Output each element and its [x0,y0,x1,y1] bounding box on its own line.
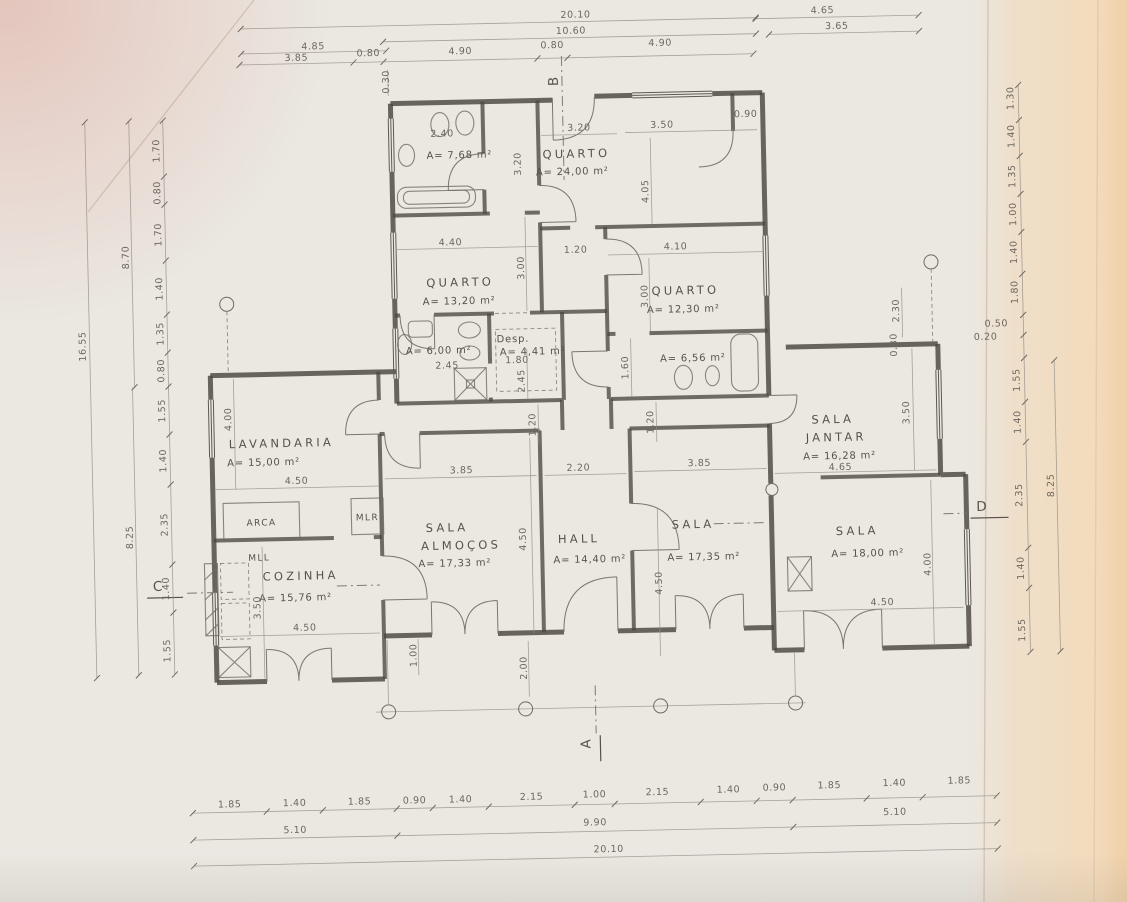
dim-label: 3.00 [516,256,528,280]
marker-letter: B [546,77,562,87]
dim-label: 1.40 [158,449,170,473]
dim-label: 2.20 [567,462,591,474]
fixture-label: MLR [356,513,379,524]
dim-label: 20.10 [560,9,590,21]
room-area: A= 18,00 m² [831,548,904,561]
dim-label: 1.00 [408,643,420,667]
dim-label: 3.50 [901,401,913,425]
left-dim-chain: 1.70 0.80 1.70 1.40 1.35 0.80 1.55 1.40 … [73,118,178,682]
bathtub-inner [403,190,469,204]
dim-label: 1.40 [161,577,173,601]
room-area: A= 7,68 m² [426,149,492,161]
toilet-icon [398,144,414,166]
room-name: ALMOÇOS [421,537,501,553]
dim-label: 2.40 [430,128,454,140]
sink-icon [408,321,432,338]
room-area: A= 12,30 m² [647,304,720,317]
room-name: SALA [672,517,715,532]
dim-label: 0.80 [156,359,168,383]
kitchen-fixtures [204,563,250,678]
room-name: SALA [836,523,879,538]
room-name: SALA [426,520,469,535]
dim-label: 1.60 [620,356,632,380]
dim-label: 1.40 [717,784,741,796]
dim-label: 1.40 [449,794,473,806]
dim-label: 4.10 [664,241,688,253]
dim-label: 1.00 [583,789,607,801]
room-name: HALL [558,531,600,546]
bathtub-icon [397,186,475,209]
dim-label: 4.00 [223,407,235,431]
dim-label: 1.20 [645,410,657,434]
room-area: A= 6,56 m² [660,352,726,364]
room-name: QUARTO [426,274,494,289]
room-area: A= 17,35 m² [667,551,740,564]
dim-label: 0.50 [984,318,1008,330]
marker-letter: D [976,499,987,515]
dim-label: 3.85 [450,465,474,477]
dim-label: 2.45 [435,360,459,372]
dim-label: 4.00 [922,552,934,576]
dim-label: 1.85 [348,796,372,808]
dim-label: 1.55 [162,639,174,663]
dim-label: 16.55 [77,331,89,361]
dim-label: 2.15 [520,792,544,804]
dim-label: 1.40 [1015,556,1027,580]
dim-label: 0.30 [889,333,901,357]
dim-label: 1.55 [1017,618,1029,642]
dim-label: 1.35 [155,322,167,346]
dim-label: 1.35 [1007,164,1019,188]
room-area: A= 6,00 m² [406,345,472,357]
dim-label: 3.65 [825,21,849,33]
dim-label: 2.00 [518,656,530,680]
dim-label: 0.90 [403,795,427,807]
dim-label: 4.05 [640,179,652,203]
dim-label: 20.10 [594,844,624,856]
room-name: SALA [811,412,854,427]
plan-group: B A C D QUARTO A= 24,00 m² QUARTO A= 13,… [71,0,1068,871]
dim-label: 4.85 [301,41,325,53]
porch [219,255,948,723]
dim-label: 4.50 [285,476,309,488]
fireplace-icon [787,557,812,592]
dim-label: 1.55 [157,399,169,423]
bidet-icon [705,366,719,386]
room-area: A= 24,00 m² [536,166,609,179]
room-area: A= 15,76 m² [259,592,332,605]
dim-label: 4.50 [654,571,666,595]
doors [254,91,882,681]
dim-label: 0.20 [974,331,998,343]
dim-label: 0.80 [356,48,380,60]
dim-label: 5.10 [883,807,907,819]
dim-label: 8.70 [120,246,132,270]
dim-label: 3.85 [687,458,711,470]
dim-label: 5.10 [283,825,307,837]
section-line-b [561,56,564,180]
room-name: COZINHA [263,568,339,584]
dim-label: 10.60 [556,25,586,37]
scanned-floor-plan-sheet: B A C D QUARTO A= 24,00 m² QUARTO A= 13,… [0,0,1127,902]
dim-label: 1.30 [1005,86,1017,110]
room-name: Desp. [496,334,529,346]
room-area: A= 15,00 m² [227,457,300,470]
fixture-label: MLL [248,553,270,563]
dim-label: 2.45 [516,369,528,393]
fixture-label: ARCA [246,518,276,529]
dim-label: 1.20 [564,244,588,256]
dim-label: 4.65 [811,5,835,17]
room-area: A= 16,28 m² [803,450,876,463]
dim-label: 1.70 [151,139,163,163]
shower-icon [454,368,487,401]
bathtub-icon [731,334,759,392]
dim-label: 3.50 [252,596,264,620]
room-area: A= 13,20 m² [423,295,496,308]
corner-column [924,255,938,269]
dim-label: 1.55 [1011,368,1023,392]
sink-icon [458,322,480,338]
dim-label: 2.35 [159,513,171,537]
dim-label: 9.90 [583,817,607,829]
dim-label: 1.80 [1009,280,1021,304]
dim-label: 1.40 [1012,410,1024,434]
dim-label: 3.20 [567,122,591,134]
dim-label: 3.50 [650,120,674,132]
dim-label: 8.25 [125,526,137,550]
dim-label: 1.40 [882,778,906,790]
room-area: A= 17,33 m² [418,558,491,571]
room-area: A= 14,40 m² [553,554,626,567]
right-dim-chain: 1.30 1.40 1.35 1.00 1.40 1.80 1.55 1.40 … [968,81,1063,656]
dim-label: 4.50 [518,527,530,551]
dim-label: 4.50 [293,622,317,634]
dim-label: 2.15 [646,787,670,799]
dim-label: 0.30 [381,70,393,94]
dim-label: 1.70 [153,223,165,247]
dim-label: 1.40 [1009,240,1021,264]
sink-icon [456,111,475,135]
marker-letter: A [578,738,594,748]
floor-plan-drawing: B A C D QUARTO A= 24,00 m² QUARTO A= 13,… [0,0,1127,902]
pantry-threshold [495,313,529,314]
dim-label: 3.20 [512,152,524,176]
dim-label: 4.50 [871,597,895,609]
dim-label: 4.90 [448,46,472,58]
section-line-a [595,685,596,733]
room-name: QUARTO [651,283,719,298]
top-dim-chain: 20.10 10.60 4.85 3.85 0.80 4.90 0.80 4.9… [235,2,923,97]
counter-dashed [221,603,250,640]
dim-label: 1.40 [283,798,307,810]
dim-label: 3.00 [639,284,651,308]
corner-column [220,297,234,311]
dim-label: 1.20 [527,413,539,437]
dim-label: 1.40 [1006,124,1018,148]
room-name: JANTAR [805,429,867,444]
dim-label: 1.85 [817,780,841,792]
dim-label: 8.25 [1046,473,1058,497]
dim-label: 4.40 [439,237,463,249]
counter-dashed [220,563,249,600]
dim-label: 1.40 [154,277,166,301]
dim-label: 0.80 [152,181,164,205]
dim-label: 0.80 [540,40,564,52]
dim-label: 1.85 [218,799,242,811]
corner-column [766,483,778,495]
dim-label: 1.00 [1008,202,1020,226]
dim-label: 0.90 [734,109,758,121]
kitchen-sink-icon [218,647,251,678]
room-name: LAVANDARIA [229,435,334,451]
dim-label: 4.65 [829,462,853,474]
bottom-dim-chain: 1.85 1.40 1.85 0.90 1.40 2.15 1.00 2.15 … [189,775,1000,870]
dim-label: 4.90 [648,38,672,50]
toilet-icon [674,365,693,389]
dim-label: 2.35 [1014,483,1026,507]
room-name: QUARTO [542,146,610,161]
dim-label: 0.90 [763,782,787,794]
dim-label: 3.85 [284,52,308,64]
dim-label: 2.30 [891,299,903,323]
dim-label: 1.85 [947,775,971,787]
dim-label: 1.80 [505,355,529,367]
